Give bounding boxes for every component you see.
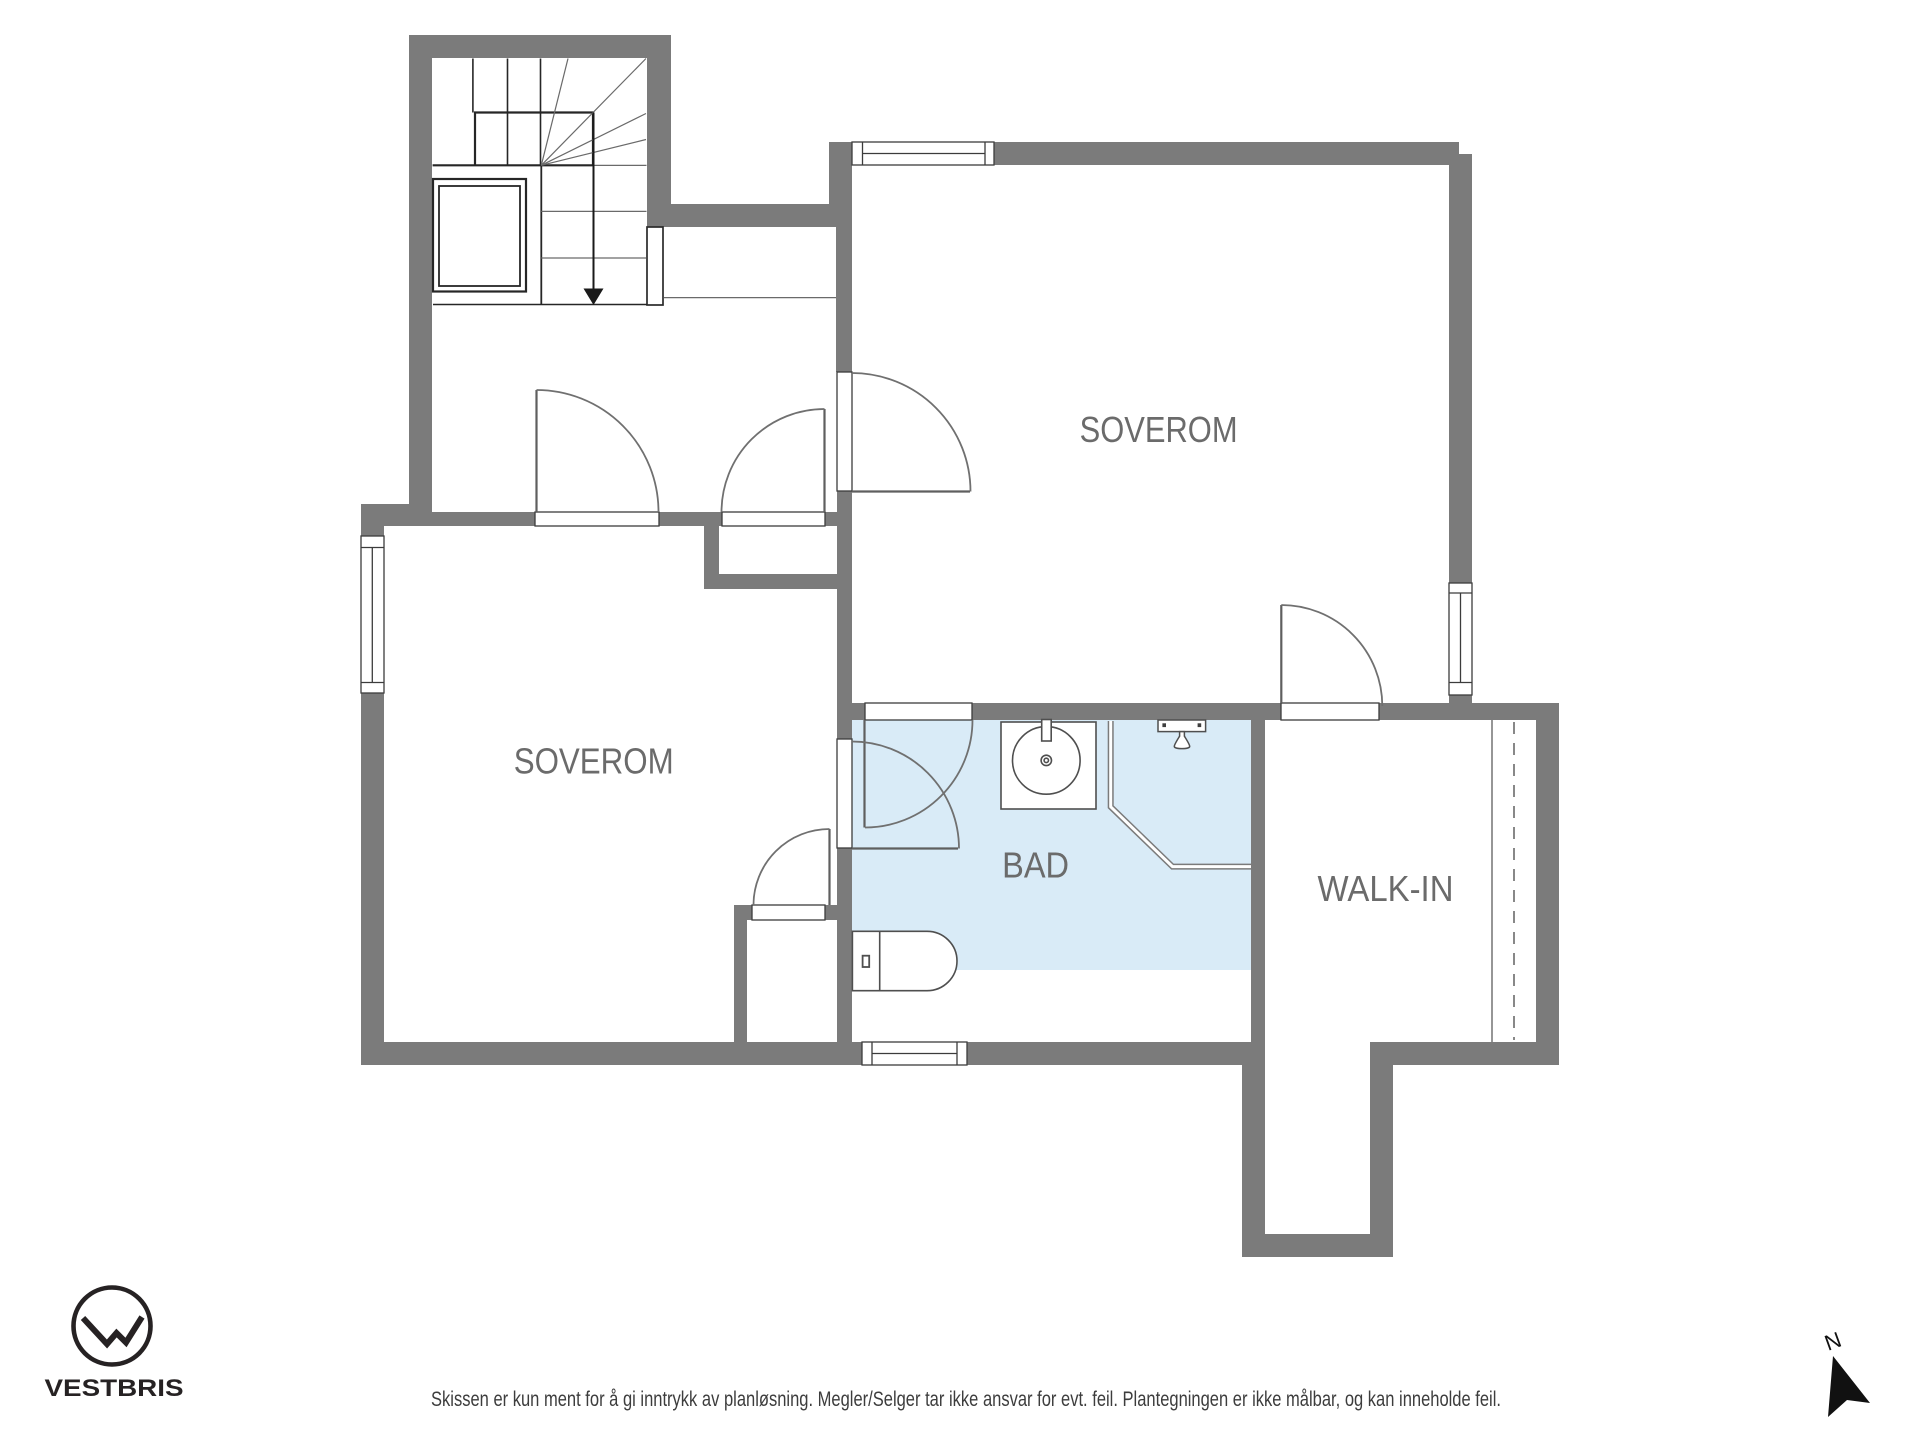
svg-text:BAD: BAD — [1002, 844, 1069, 885]
svg-text:VESTBRIS: VESTBRIS — [45, 1375, 184, 1402]
svg-text:WALK-IN: WALK-IN — [1318, 868, 1454, 909]
svg-text:Skissen er kun ment for å gi i: Skissen er kun ment for å gi inntrykk av… — [431, 1387, 1501, 1411]
svg-text:SOVEROM: SOVEROM — [514, 740, 674, 781]
svg-text:SOVEROM: SOVEROM — [1080, 409, 1238, 450]
